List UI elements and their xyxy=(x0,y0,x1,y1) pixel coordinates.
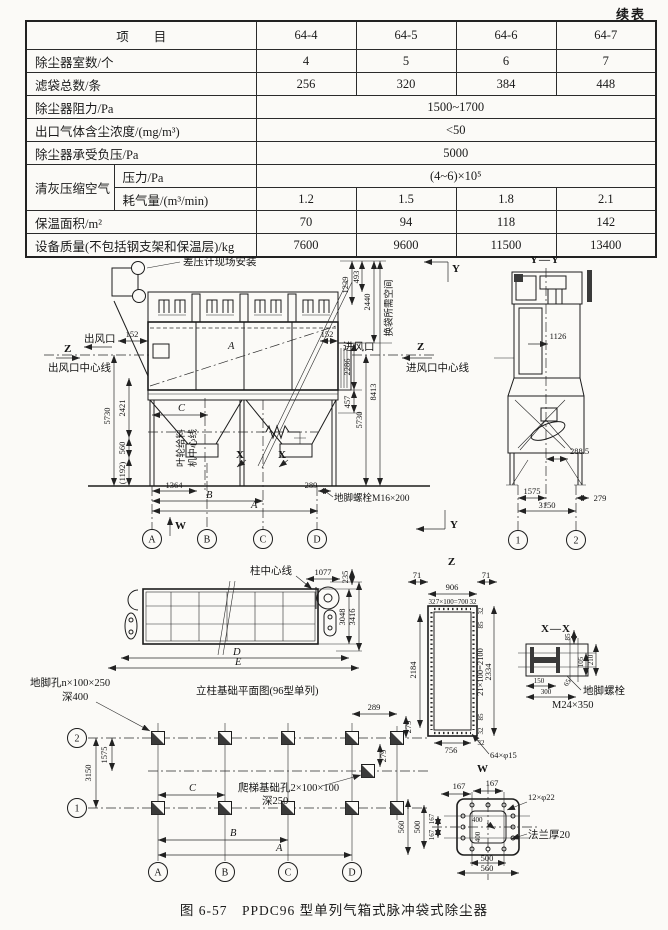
bag-space-label: 换袋所需空间 xyxy=(383,279,395,336)
dim-152-right: 152 xyxy=(321,329,334,339)
fcol-bubble-A: A xyxy=(154,868,162,879)
dim-85-b: 85 xyxy=(477,713,485,721)
z-view: Z 71 71 906 32 7×100=700 32 2184 32 85 2… xyxy=(408,556,517,760)
table-row: 除尘器室数/个 4 5 6 7 xyxy=(26,50,656,73)
dim-3048: 3048 xyxy=(337,609,347,626)
yy-title: Y—Y xyxy=(530,254,560,266)
dim-560-l: 560 xyxy=(396,821,406,834)
dim-1575-f: 1575 xyxy=(99,747,109,764)
dim-167-l2: 167 xyxy=(428,829,436,840)
col-model-2: 64-5 xyxy=(356,21,456,50)
dim-105: 105 xyxy=(577,656,585,667)
dim-2440: 2440 xyxy=(362,294,372,311)
front-view: 差压计现场安装 A xyxy=(44,255,469,549)
anchor-hole-label-1: 地脚孔n×100×250 xyxy=(30,676,110,689)
col-item: 项 目 xyxy=(26,21,256,50)
dim-2334: 2334 xyxy=(483,663,493,681)
w-title: W xyxy=(477,763,489,775)
table-row: 保温面积/m² 70 94 118 142 xyxy=(26,211,656,234)
table-row: 清灰压缩空气 压力/Pa (4~6)×10⁵ xyxy=(26,165,656,188)
dim-E: E xyxy=(234,657,242,668)
dim-3416: 3416 xyxy=(347,609,357,626)
xx-anchor-bolt-1: 地脚螺栓 xyxy=(583,684,625,697)
dim-1192: (1192) xyxy=(117,462,127,485)
outlet-label: 出风口 xyxy=(84,332,116,345)
holes-64-phi15: 64×φ15 xyxy=(490,750,517,760)
row-bubble-2f: 2 xyxy=(75,734,80,745)
table-row: 除尘器承受负压/Pa 5000 xyxy=(26,142,656,165)
dim-500-l: 500 xyxy=(412,821,422,834)
svg-text:Y: Y xyxy=(450,519,459,531)
row-bubble-1: 1 xyxy=(516,536,521,547)
section-z-left: Z xyxy=(64,343,72,355)
feeder-centerline-1: 叶轮给料 xyxy=(175,429,187,468)
dim-32-r2: 32 xyxy=(477,727,485,735)
dim-85-t: 85 xyxy=(477,621,485,629)
dim-235: 235 xyxy=(340,571,350,584)
dim-279-a: 279 xyxy=(403,721,413,734)
dim-457: 457 xyxy=(342,396,352,409)
plan-caption: 立柱基础平面图(96型单列) xyxy=(196,684,319,697)
dim-1077: 1077 xyxy=(315,567,332,577)
dim-1575-yy: 1575 xyxy=(524,486,541,496)
gauge-note: 差压计现场安装 xyxy=(183,255,257,268)
ladder-hole-label-2: 深250 xyxy=(262,795,288,807)
dim-167-t2: 167 xyxy=(486,778,499,788)
w-direction-mark: W xyxy=(170,517,187,536)
figure-caption: 图 6-57 PPDC96 型单列气箱式脉冲袋式除尘器 xyxy=(0,899,668,919)
dim-3150-yy: 3150 xyxy=(539,500,556,510)
dim-A-body: A xyxy=(227,341,235,352)
dim-560-b: 560 xyxy=(481,863,494,873)
dim-A: A xyxy=(250,500,258,511)
dim-1239: 1239 xyxy=(340,277,350,294)
inlet-centerline-label: 进风口中心线 xyxy=(406,361,469,374)
anchor-bolt-label: 地脚螺栓M16×200 xyxy=(334,492,410,504)
section-z-right: Z xyxy=(417,341,425,353)
table-row: 耗气量/(m³/min) 1.2 1.5 1.8 2.1 xyxy=(26,188,656,211)
col-model-1: 64-4 xyxy=(256,21,356,50)
col-bubble-D: D xyxy=(313,535,320,546)
spacing-h: 7×100=700 xyxy=(436,598,469,606)
svg-text:Y: Y xyxy=(452,263,461,275)
col-bubble-B: B xyxy=(204,535,211,546)
fcol-bubble-D: D xyxy=(348,868,355,879)
dim-5730-left: 5730 xyxy=(102,408,112,425)
dim-500-b: 500 xyxy=(481,853,494,863)
flange-thickness-label: 法兰厚20 xyxy=(528,828,570,841)
xx-view: X—X 85 105 210 150 300 65 地脚螺栓 M24×350 xyxy=(518,623,625,711)
dim-1126: 1126 xyxy=(550,331,567,341)
row-bubble-2: 2 xyxy=(574,536,579,547)
table-row: 出口气体含尘浓度/(mg/m³) <50 xyxy=(26,119,656,142)
col-bubble-C: C xyxy=(260,535,267,546)
col-model-4: 64-7 xyxy=(556,21,656,50)
dim-289: 289 xyxy=(305,480,318,490)
dim-279-b: 279 xyxy=(378,750,388,763)
dim-32-tr: 32 xyxy=(470,598,478,606)
dim-85-xx: 85 xyxy=(564,633,572,641)
dim-C: C xyxy=(178,403,186,414)
table-header-row: 项 目 64-4 64-5 64-6 64-7 xyxy=(26,21,656,50)
dim-1364: 1364 xyxy=(166,480,184,490)
dim-279-yy: 279 xyxy=(594,493,607,503)
w-view: W 167 167 12×φ22 400 400 法兰厚20 500 560 5… xyxy=(396,763,570,880)
yy-view: Y—Y 1126 288.5 1575 279 3150 xyxy=(494,254,606,550)
dim-B-f: B xyxy=(230,828,237,839)
dim-400-b: 400 xyxy=(474,831,482,842)
dim-65: 65 xyxy=(562,677,573,688)
plan-view: 柱中心线 1077 235 3048 3416 D E 立柱基础平面图(9 xyxy=(30,564,362,731)
dim-2421: 2421 xyxy=(117,400,127,417)
anchor-hole-label-2: 深400 xyxy=(62,691,88,703)
fcol-bubble-C: C xyxy=(285,868,292,879)
row-bubble-1f: 1 xyxy=(75,804,80,815)
svg-text:W: W xyxy=(175,520,187,532)
table-row: 滤袋总数/条 256 320 384 448 xyxy=(26,73,656,96)
dim-32-r1: 32 xyxy=(477,607,485,615)
dim-167-t1: 167 xyxy=(453,781,466,791)
dim-A-f: A xyxy=(275,843,283,854)
svg-text:X: X xyxy=(236,449,245,461)
dim-2184: 2184 xyxy=(408,661,418,679)
dim-3150-f: 3150 xyxy=(83,765,93,782)
dim-289-f: 289 xyxy=(368,702,381,712)
col-model-3: 64-6 xyxy=(456,21,556,50)
dim-493: 493 xyxy=(351,271,361,284)
dim-71-l: 71 xyxy=(413,570,422,580)
ladder-hole-label-1: 爬梯基础孔2×100×100 xyxy=(238,781,339,794)
fcol-bubble-B: B xyxy=(222,868,229,879)
outlet-centerline-label: 出风口中心线 xyxy=(48,361,111,374)
dim-167-l1: 167 xyxy=(428,813,436,824)
dim-906: 906 xyxy=(446,582,459,592)
dim-150: 150 xyxy=(534,677,545,685)
spec-table: 项 目 64-4 64-5 64-6 64-7 除尘器室数/个 4 5 6 7 … xyxy=(25,20,657,258)
dim-560: 560 xyxy=(117,442,127,455)
section-y-bottom: Y xyxy=(416,510,459,531)
dim-152-left: 152 xyxy=(126,329,139,339)
z-title: Z xyxy=(448,556,456,568)
section-x-mark: X xyxy=(278,449,288,467)
table-row: 除尘器阻力/Pa 1500~1700 xyxy=(26,96,656,119)
section-y-top: Y xyxy=(424,262,461,282)
dim-C-f: C xyxy=(189,783,197,794)
dim-71-r: 71 xyxy=(482,570,491,580)
dim-400-a: 400 xyxy=(472,816,483,824)
holes-12-phi22: 12×φ22 xyxy=(528,792,555,802)
dim-210: 210 xyxy=(587,654,595,665)
dim-2286: 2286 xyxy=(342,359,352,376)
column-centerline-label: 柱中心线 xyxy=(250,564,292,577)
dim-300: 300 xyxy=(541,688,552,696)
xx-title: X—X xyxy=(541,623,571,635)
dim-288-5: 288.5 xyxy=(570,446,589,456)
dim-756: 756 xyxy=(445,745,458,755)
svg-text:X: X xyxy=(278,449,287,461)
xx-anchor-bolt-2: M24×350 xyxy=(552,700,594,711)
dim-5730-right: 5730 xyxy=(354,412,364,429)
feeder-centerline-2: 机中心线 xyxy=(187,429,199,468)
col-bubble-A: A xyxy=(148,535,156,546)
dim-32-b: 32 xyxy=(478,739,486,747)
dim-8413: 8413 xyxy=(368,384,378,401)
engineering-drawing: 差压计现场安装 A xyxy=(0,248,668,928)
foundation-plan: 2 1 289 279 279 1575 3150 C B A 爬梯基础孔2×1… xyxy=(68,702,431,882)
